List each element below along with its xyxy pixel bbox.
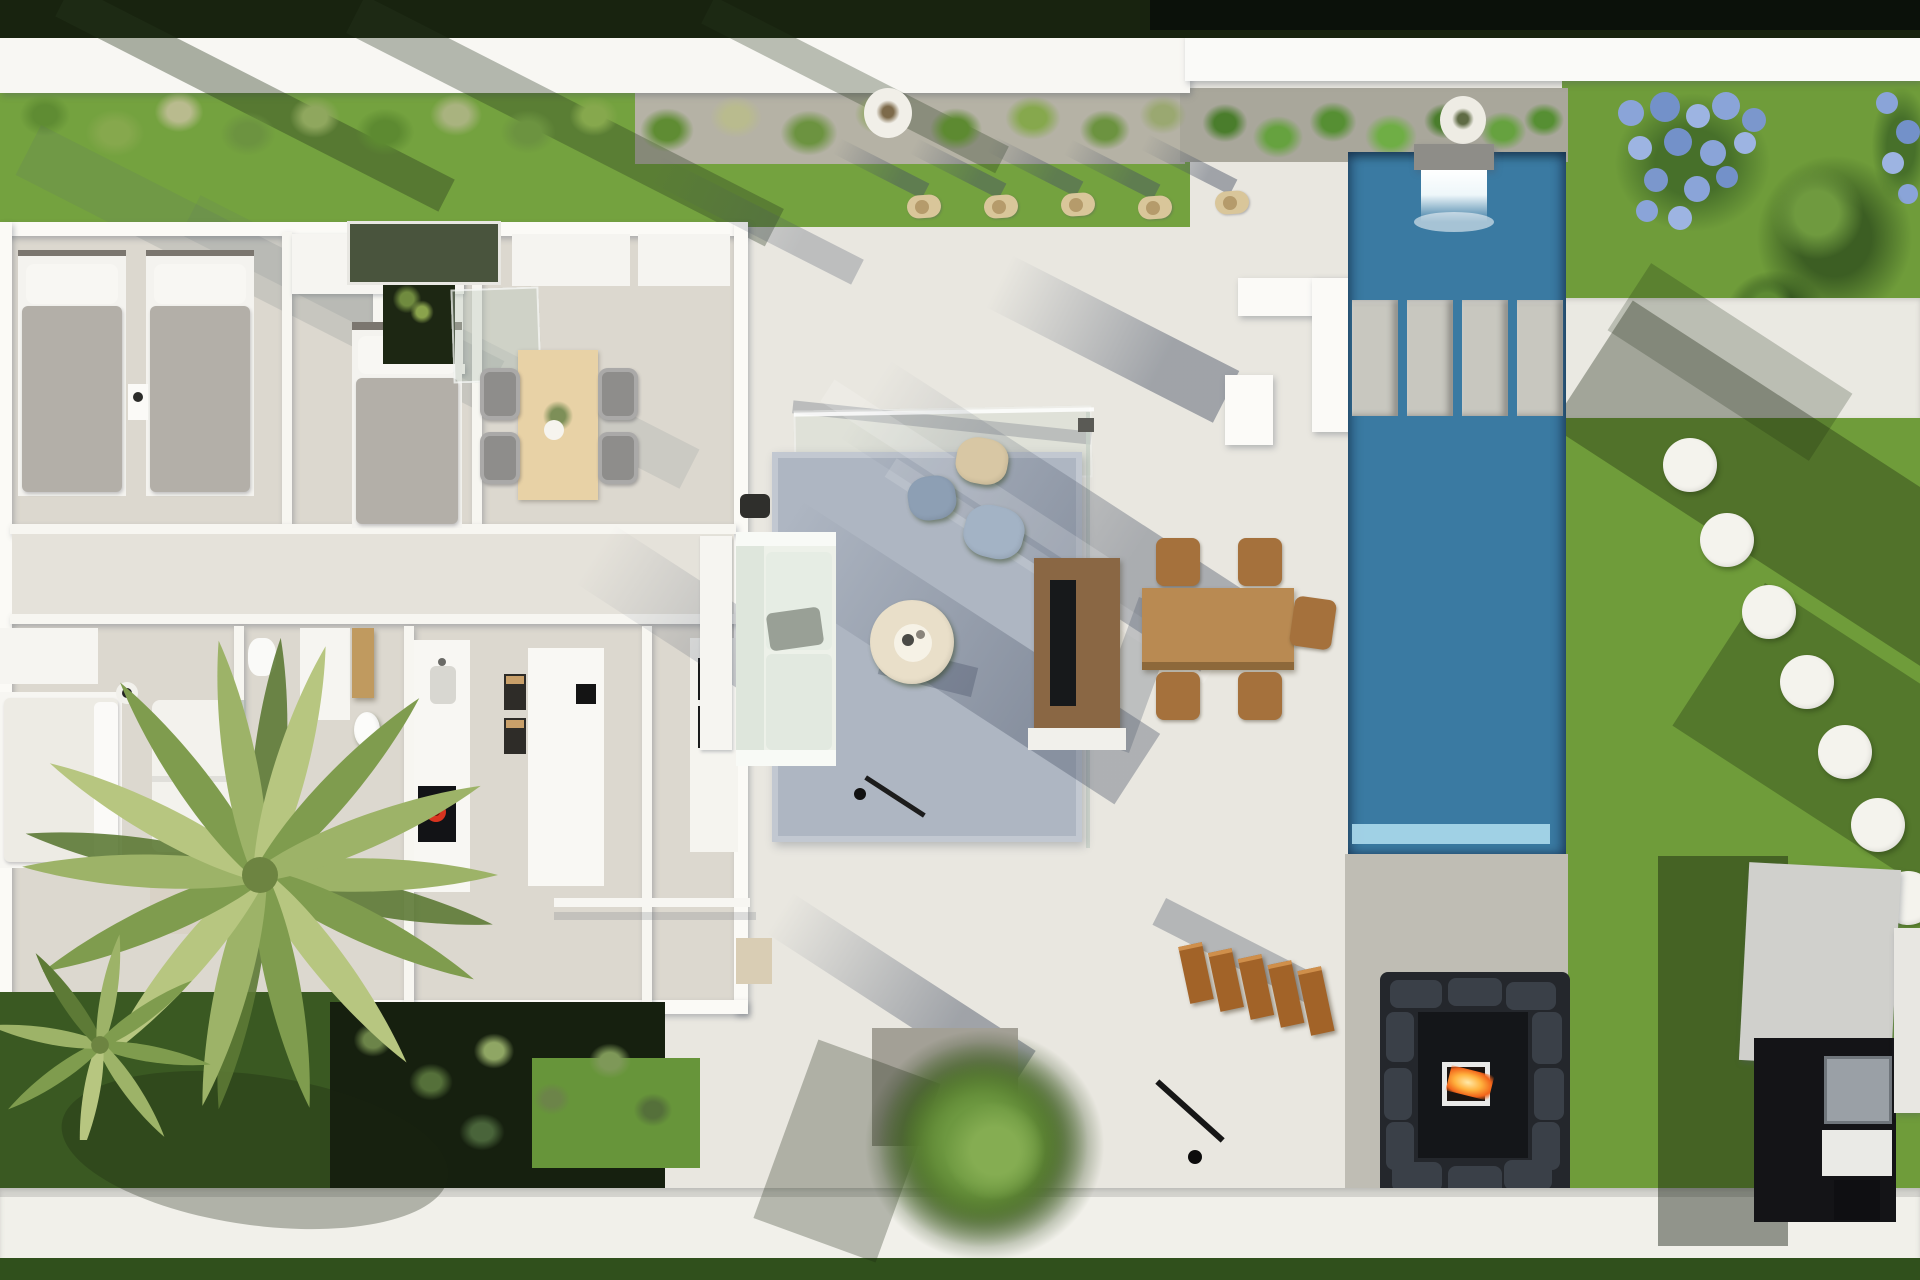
stepping-stone — [1851, 798, 1905, 852]
stepping-stone — [1700, 513, 1754, 567]
hydrangea-flower — [1686, 104, 1710, 128]
sofa-armrest — [736, 750, 836, 766]
grass-tuft — [635, 104, 699, 156]
monstera-leaves — [1248, 112, 1308, 162]
patio-chair — [1238, 672, 1282, 720]
hydrangea-flower — [1716, 166, 1738, 188]
table-lamp — [133, 392, 143, 402]
patio-table — [1142, 588, 1294, 670]
pit-cushion — [1506, 982, 1556, 1010]
grass-tuft — [705, 92, 767, 142]
hydrangea-flower — [1712, 92, 1740, 120]
dresser — [0, 628, 98, 684]
pit-cushion — [1386, 1122, 1414, 1170]
pit-cushion — [1384, 1068, 1412, 1120]
hydrangea-flower — [1684, 176, 1710, 202]
skylight-glass — [350, 224, 498, 282]
bed-pillow — [154, 264, 246, 304]
hydrangea-flower — [1650, 92, 1680, 122]
tray-item — [916, 630, 925, 639]
bolster-end — [915, 200, 929, 214]
bbq-side-panel — [1894, 928, 1920, 1113]
bbq-grill — [1824, 1056, 1892, 1124]
hydrangea-flower — [1628, 136, 1652, 160]
side-stool — [740, 494, 770, 518]
patio-chair — [1156, 538, 1200, 586]
pit-cushion — [1448, 978, 1502, 1006]
hydrangea-flower — [1618, 100, 1644, 126]
bolster-end — [1146, 201, 1160, 215]
tree-canopy-highlight — [935, 1092, 1055, 1210]
terrace-step-edge — [554, 898, 750, 907]
entry-steps — [736, 938, 772, 984]
bolster-end — [992, 200, 1006, 214]
shelf-ladder — [700, 536, 732, 750]
tv-wall-panel — [1034, 558, 1120, 732]
tv-base — [1028, 728, 1126, 750]
monstera-leaves — [1305, 98, 1361, 146]
terrace-step-shadow — [554, 912, 756, 920]
grass-tuft — [1135, 92, 1191, 138]
sideboard — [638, 234, 730, 286]
master-rug — [150, 870, 320, 934]
monstera-leaves — [1520, 100, 1568, 140]
garden-bush-highlight — [1762, 158, 1872, 268]
olive-spray — [470, 1030, 518, 1072]
olive-spray — [585, 1040, 635, 1082]
hydrangea-flower — [1664, 128, 1692, 156]
bath-cabinet — [300, 628, 350, 720]
master-bed-pillows — [94, 702, 118, 858]
pit-cushion — [1534, 1068, 1564, 1120]
bbq-canopy — [1739, 862, 1901, 1068]
floor-lamp — [122, 688, 132, 698]
monstera-leaves — [1198, 100, 1252, 146]
pit-cushion — [1504, 1160, 1552, 1190]
olive-spray — [350, 1020, 396, 1060]
bolster-end — [1069, 198, 1083, 212]
sofa-cushion — [766, 654, 832, 750]
sofa-throw — [766, 606, 825, 651]
waterfall-spout — [1414, 144, 1494, 170]
bed-duvet — [356, 378, 458, 524]
bar-stool-top — [506, 676, 524, 684]
waterfall-splash — [1414, 212, 1494, 232]
hydrangea-flower — [1636, 200, 1658, 222]
bed-pillow — [26, 264, 118, 304]
dining-chair — [480, 368, 520, 420]
stepping-stone — [1742, 585, 1796, 639]
olive-spray — [530, 1080, 574, 1118]
pool-step-slab — [1517, 300, 1563, 416]
bed-duvet — [22, 306, 122, 492]
wall-band-top-right — [1185, 33, 1920, 81]
bbq-stool — [1834, 1180, 1880, 1220]
stepping-stone — [1818, 725, 1872, 779]
pot-plant — [874, 98, 902, 126]
pit-cushion — [1390, 980, 1442, 1008]
grass-tuft — [150, 88, 208, 136]
hydrangea-flower — [1876, 92, 1898, 114]
lamp-head — [854, 788, 866, 800]
interior-wall — [642, 626, 652, 1012]
dining-chair — [598, 432, 638, 484]
interior-wall — [404, 626, 414, 1012]
pool-step-slab — [1462, 300, 1508, 416]
tv-screen — [1050, 580, 1076, 706]
patio-chair — [1156, 672, 1200, 720]
sofa-backrest — [736, 546, 764, 752]
hedge-top-right — [1150, 0, 1920, 30]
kitchen-faucet — [438, 658, 446, 666]
dining-chair — [598, 368, 638, 420]
cooktop-burner-core — [432, 808, 440, 816]
patio-chair — [1238, 538, 1282, 586]
olive-spray — [405, 1060, 457, 1104]
interior-wall — [282, 232, 292, 524]
garden-torch-head — [1188, 1150, 1202, 1164]
pergola-pillar — [1225, 375, 1273, 445]
shower-glass-line — [240, 700, 246, 822]
grass-tuft — [1000, 92, 1066, 144]
bbq-counter — [1822, 1130, 1892, 1176]
pool-step-slab — [1352, 300, 1398, 416]
patio-chair — [1289, 595, 1338, 650]
pool-water — [1348, 152, 1566, 854]
hydrangea-flower — [1700, 140, 1726, 166]
bolster-end — [1223, 196, 1237, 210]
grass-tuft — [285, 92, 345, 142]
pergola-wall — [1312, 278, 1352, 432]
kitchen-sink — [430, 666, 456, 704]
olive-spray — [455, 1110, 509, 1154]
sideboard — [512, 234, 630, 286]
toilet — [248, 638, 276, 676]
olive-spray — [630, 1090, 676, 1130]
grass-tuft — [350, 104, 420, 160]
hydrangea-flower — [1668, 206, 1692, 230]
stepping-stone — [1663, 438, 1717, 492]
island-appliance — [576, 684, 596, 704]
bed-duvet — [150, 306, 250, 492]
patio-table-edge — [1142, 662, 1294, 670]
tray-item — [902, 634, 914, 646]
dining-chair — [480, 432, 520, 484]
bathtub — [354, 712, 380, 748]
pit-cushion — [1386, 1012, 1414, 1062]
grass-tuft — [425, 90, 487, 140]
chaise-seam — [152, 776, 242, 782]
stepping-stone — [1780, 655, 1834, 709]
glass-corner-post — [1078, 418, 1094, 432]
nightstand — [128, 384, 148, 420]
grass-tuft — [565, 92, 623, 140]
pot-plant — [1450, 106, 1476, 132]
hydrangea-flower — [1644, 168, 1668, 192]
villa-aerial-floorplan-render — [0, 0, 1920, 1280]
pool-bench — [1352, 824, 1550, 844]
bar-stool-top — [506, 720, 524, 728]
pit-cushion — [1532, 1012, 1562, 1064]
grass-tuft — [495, 106, 561, 158]
bath-vanity-wood — [352, 628, 374, 698]
hydrangea-flower — [1742, 108, 1766, 132]
cactus — [408, 298, 436, 326]
table-dish — [544, 420, 564, 440]
grass-tuft — [215, 108, 281, 160]
pool-step-slab — [1407, 300, 1453, 416]
